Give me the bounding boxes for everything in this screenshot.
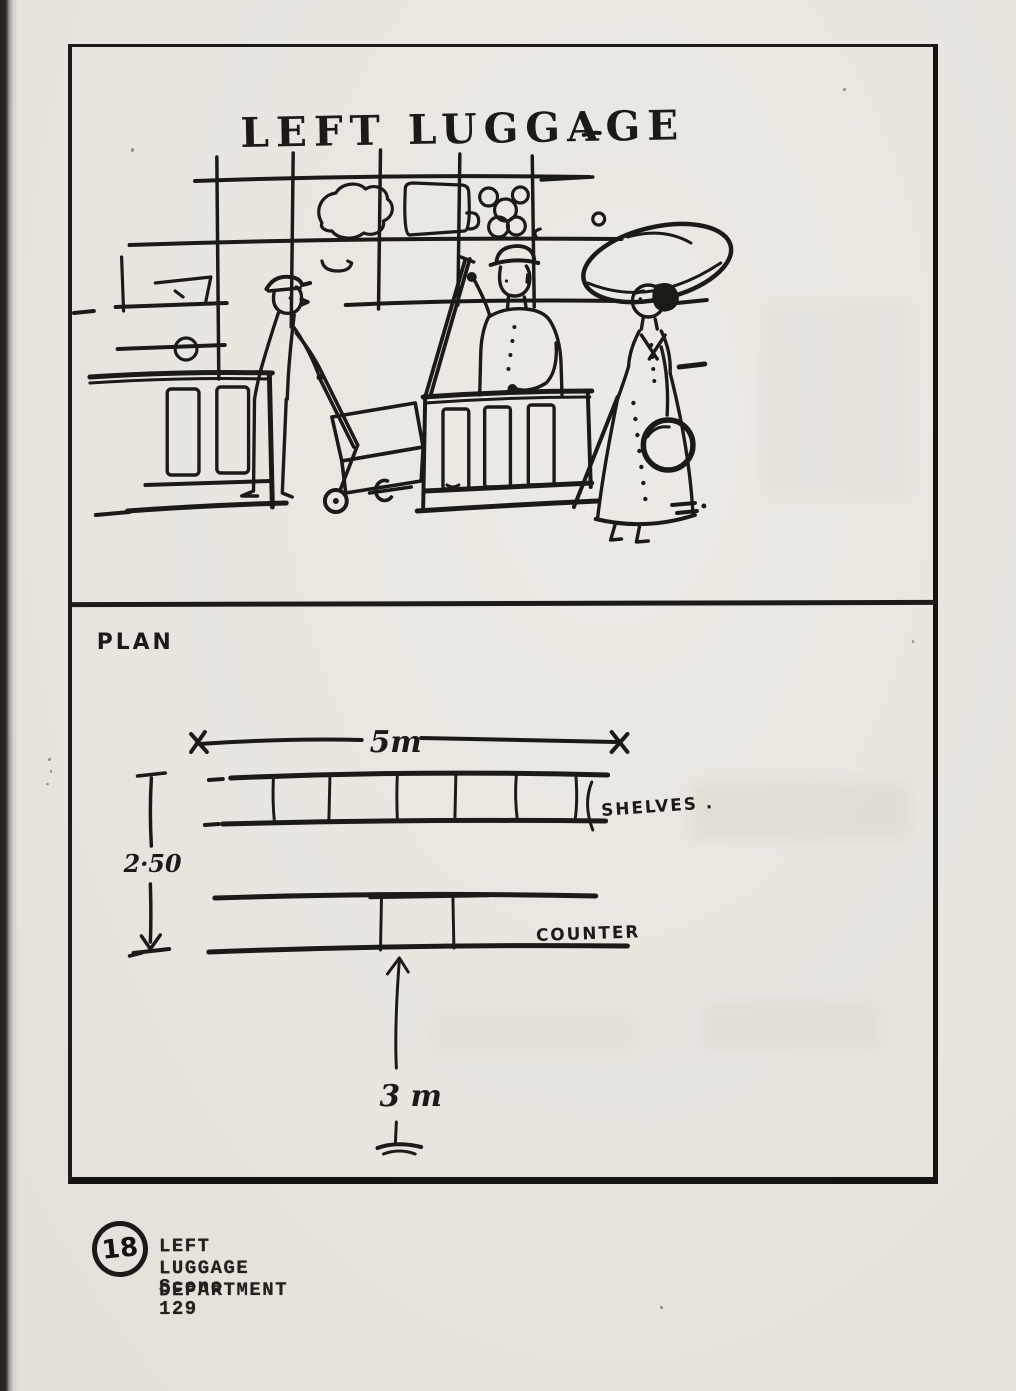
- lady-apron-edge: [574, 397, 618, 507]
- dish-item: [322, 261, 352, 271]
- lady-eye: [639, 297, 643, 301]
- hatbox-item: [512, 187, 528, 203]
- dim-2-50-text: 2·50: [123, 850, 182, 878]
- lady-shoe: [611, 523, 622, 540]
- lady-skirt-hem: [596, 515, 695, 524]
- left-luggage-sign: LEFT LUGGAGE: [240, 101, 686, 157]
- attendant-shoulders: [489, 309, 551, 321]
- hatbox-item: [507, 217, 525, 235]
- sign-tail-stroke: [584, 133, 600, 135]
- shelf-grid: [74, 150, 707, 379]
- ball-item: [175, 338, 197, 360]
- dim-5m-text: 5m: [370, 725, 422, 760]
- porter-cap: [266, 277, 310, 289]
- shelves-label: SHELVES .: [601, 792, 715, 820]
- tag-item: [155, 277, 211, 301]
- dim-3m-text: 3 m: [380, 1079, 443, 1114]
- lady-arm: [661, 347, 667, 415]
- porter-figure: [242, 277, 324, 497]
- small-ball-item: [593, 213, 605, 225]
- drawing-frame: LEFT LUGGAGE: [68, 44, 938, 1184]
- lady-figure: [574, 211, 739, 542]
- attendant-figure: [425, 246, 562, 397]
- attendant-cap-brim: [491, 260, 539, 265]
- dimension-3m: [378, 958, 422, 1154]
- scan-left-edge: [0, 0, 18, 1391]
- scan-speck: [48, 758, 51, 761]
- plan-label: PLAN: [97, 630, 174, 655]
- sign-text: LEFT LUGGAGE: [240, 101, 686, 157]
- scanned-page: { "page": { "paper_color": "#e8e5df", "i…: [0, 0, 1016, 1391]
- hatbox-item: [480, 188, 498, 206]
- shelves-plan: [205, 773, 608, 830]
- side-dash: [679, 364, 705, 367]
- lady-hat-crown: [627, 233, 690, 243]
- scan-speck: [50, 770, 52, 773]
- attendant-raised-arm: [474, 279, 490, 315]
- scan-speck: [46, 783, 49, 785]
- lady-bodice: [628, 331, 639, 367]
- caption-scene: Scene 129: [159, 1276, 224, 1320]
- attendant-head: [500, 266, 530, 296]
- plan-panel: PLAN 5m SHELVES .: [72, 606, 933, 1177]
- luggage-trolley: [320, 377, 423, 512]
- centre-counter: [417, 391, 598, 511]
- scene-number-badge: 18: [89, 1218, 151, 1280]
- post-tick: [122, 257, 124, 311]
- counter-label: COUNTER: [536, 921, 641, 945]
- porter-back: [255, 313, 279, 399]
- scan-speck: [660, 1306, 663, 1309]
- small-hook-mark: [535, 229, 540, 237]
- porter-leg: [282, 399, 292, 497]
- scene-number: 18: [100, 1232, 139, 1266]
- attendant-resting-arm: [516, 343, 556, 390]
- porter-arm: [296, 333, 324, 377]
- porter-eye: [289, 296, 292, 299]
- pole: [425, 259, 470, 397]
- sketch-panel: LEFT LUGGAGE: [72, 47, 933, 601]
- lady-shoe: [636, 527, 648, 542]
- lady-skirt: [670, 373, 693, 513]
- attendant-eye: [505, 279, 508, 282]
